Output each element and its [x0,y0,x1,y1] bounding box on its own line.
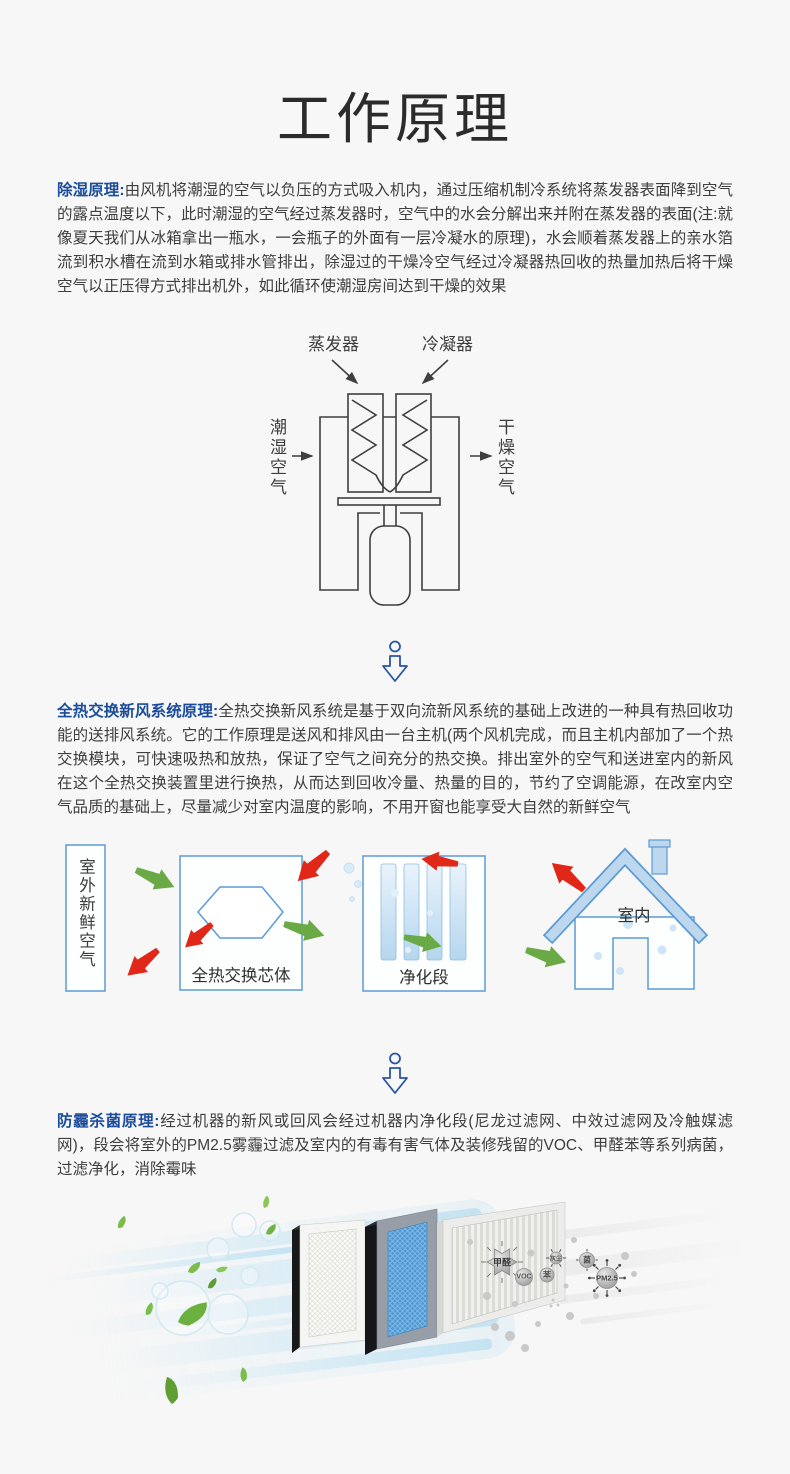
indoor-label: 室内 [603,902,665,926]
heat-exchange-paragraph: 全热交换新风系统原理:全热交换新风系统是基于双向流新风系统的基础上改进的一种具有… [57,700,733,820]
dry-air-label: 干燥空气 [496,418,513,498]
pollutant-label-dust: 灰尘 [550,1254,562,1263]
condenser-label: 冷凝器 [422,330,473,355]
filter-medium-efficiency [365,1209,437,1355]
anti-haze-paragraph-label: 防霾杀菌原理: [57,1113,159,1130]
pollutant-label-benzene: 苯 [543,1270,551,1281]
evaporator-label: 蒸发器 [308,330,359,355]
filter-scene: 甲醛 VOC 苯 灰尘 菌 PM2.5 [0,1196,790,1470]
heat-exchange-core-label: 全热交换芯体 [180,962,302,986]
page-title: 工作原理 [0,0,790,151]
page: 工作原理 除湿原理:由风机将潮湿的空气以负压的方式吸入机内，通过压缩机制冷系统将… [0,0,790,1470]
humid-air-label: 潮湿空气 [268,418,285,498]
down-arrow-icon [377,1052,413,1096]
anti-haze-paragraph-text: 经过机器的新风或回风会经过机器内净化段(尼龙过滤网、中效过滤网及冷触媒滤网)，段… [57,1113,733,1178]
pollutant-label-bacteria: 菌 [583,1255,591,1266]
dehumidify-diagram: 蒸发器 冷凝器 潮湿空气 干燥空气 [230,326,560,638]
dehumidify-paragraph-label: 除湿原理: [57,182,125,199]
outdoor-fresh-air-label: 室外新鲜空气 [77,858,94,969]
purification-section-label: 净化段 [363,964,485,988]
filter-nylon [292,1220,365,1353]
heat-exchange-paragraph-label: 全热交换新风系统原理: [57,703,218,720]
anti-haze-paragraph: 防霾杀菌原理:经过机器的新风或回风会经过机器内净化段(尼龙过滤网、中效过滤网及冷… [57,1110,733,1182]
dehumidify-paragraph: 除湿原理:由风机将潮湿的空气以负压的方式吸入机内，通过压缩机制冷系统将蒸发器表面… [57,179,733,299]
heat-exchange-diagram: 室外新鲜空气 全热交换芯体 净化段 室内 [0,838,790,1006]
pollutant-label-formaldehyde: 甲醛 [493,1256,511,1269]
pollutant-label-pm25: PM2.5 [596,1274,618,1283]
filter-scene-svg [0,1196,790,1470]
down-arrow-icon [377,640,413,684]
pollutant-label-voc: VOC [516,1274,531,1281]
dehumidify-paragraph-text: 由风机将潮湿的空气以负压的方式吸入机内，通过压缩机制冷系统将蒸发器表面降到空气的… [57,182,733,295]
